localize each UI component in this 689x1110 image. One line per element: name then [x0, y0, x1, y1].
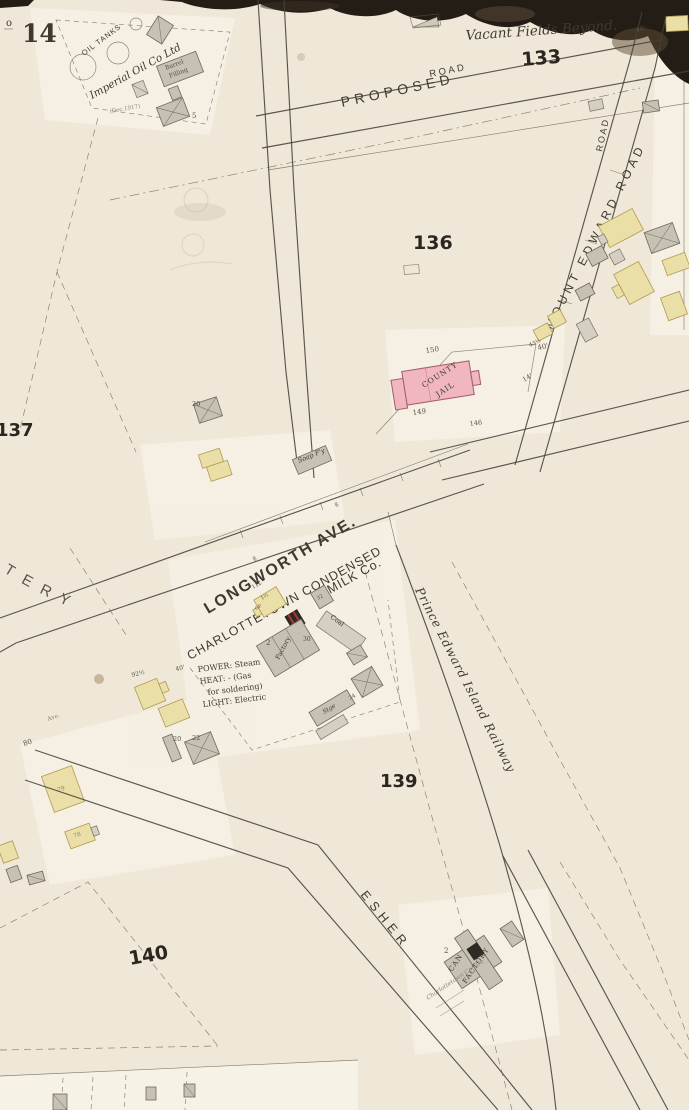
sheet-number-prefix: o	[6, 18, 12, 29]
shed-number: 5	[192, 112, 196, 120]
corner-building	[666, 15, 689, 31]
block-number-133: 133	[521, 46, 562, 71]
map-canvas: o 14 OIL TANKS Imperial Oil Co Ltd Barre…	[0, 0, 689, 1110]
lot-number-146: 146	[469, 418, 482, 428]
block-number-137: 137	[0, 420, 34, 441]
sheet-number-value: 14	[22, 19, 57, 48]
block-number-136: 136	[413, 232, 453, 254]
fire-insurance-map-sheet: o 14 OIL TANKS Imperial Oil Co Ltd Barre…	[0, 0, 689, 1110]
storeys-2: 2	[266, 639, 270, 647]
number-22: 22	[192, 734, 200, 742]
can-factory-storeys: 2	[444, 947, 448, 955]
number-30: 30	[303, 636, 311, 643]
block-number-139: 139	[380, 771, 418, 792]
lot-number-20: 20	[192, 400, 200, 408]
number-20: 20	[173, 735, 181, 743]
